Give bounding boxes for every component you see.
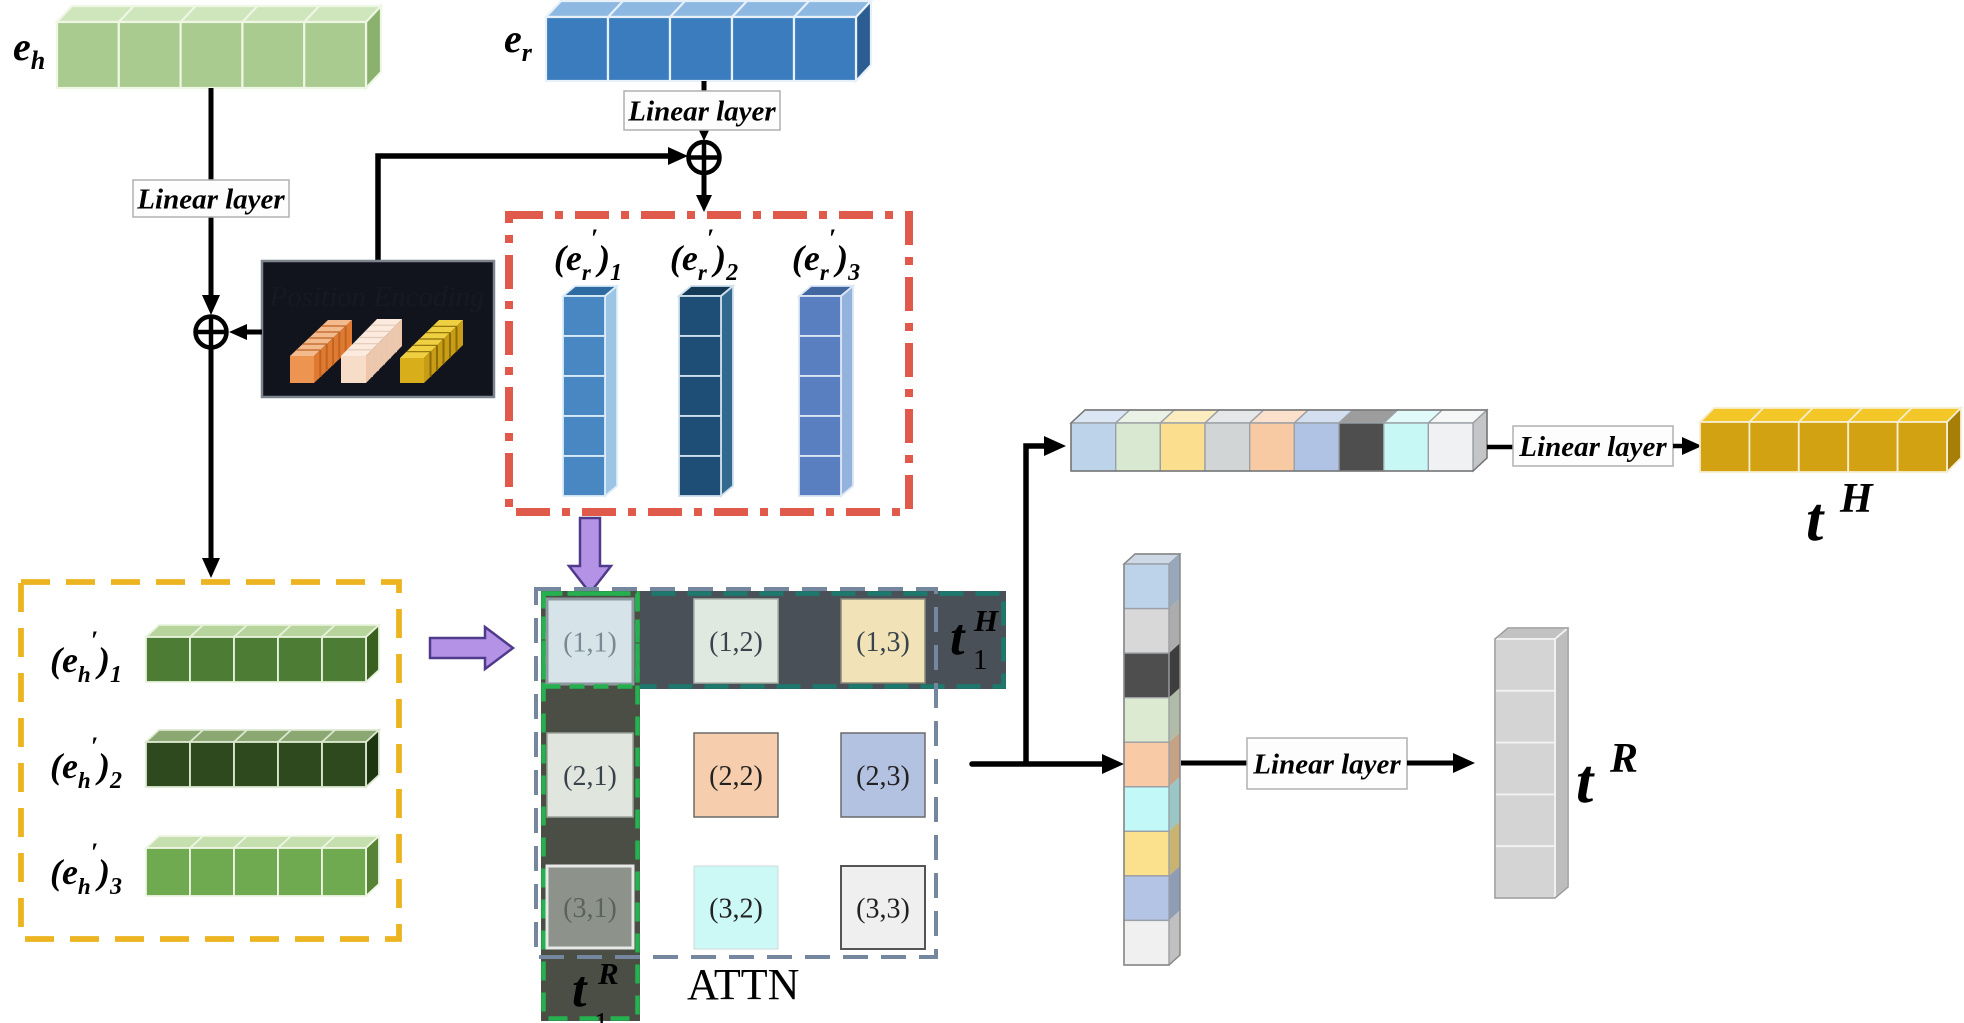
svg-text:(3,2): (3,2)	[709, 894, 763, 925]
svg-text:t: t	[572, 961, 588, 1018]
svg-text:ATTN: ATTN	[687, 960, 799, 1009]
svg-text:H: H	[973, 603, 999, 638]
svg-text:t: t	[1576, 748, 1595, 816]
svg-text:Linear layer: Linear layer	[1252, 749, 1401, 781]
svg-text:R: R	[597, 956, 619, 991]
svg-text:(2,1): (2,1)	[563, 761, 617, 792]
svg-text:1: 1	[973, 644, 988, 676]
svg-text:(2,2): (2,2)	[709, 761, 763, 792]
svg-text:(1,1): (1,1)	[563, 628, 617, 659]
svg-text:(2,3): (2,3)	[856, 761, 910, 792]
svg-text:Linear layer: Linear layer	[136, 184, 285, 216]
svg-text:H: H	[1839, 476, 1874, 522]
svg-text:1: 1	[594, 1007, 609, 1023]
svg-text:(3,3): (3,3)	[856, 894, 910, 925]
svg-text:t: t	[950, 609, 966, 666]
svg-text:t: t	[1806, 486, 1825, 554]
svg-text:(1,2): (1,2)	[709, 627, 763, 658]
svg-text:(1,3): (1,3)	[856, 627, 910, 658]
svg-text:Linear layer: Linear layer	[1518, 431, 1667, 463]
svg-text:R: R	[1609, 736, 1638, 782]
svg-text:Position Encoding: Position Encoding	[268, 281, 484, 313]
svg-text:Linear layer: Linear layer	[627, 96, 776, 128]
svg-text:(3,1): (3,1)	[563, 893, 617, 924]
